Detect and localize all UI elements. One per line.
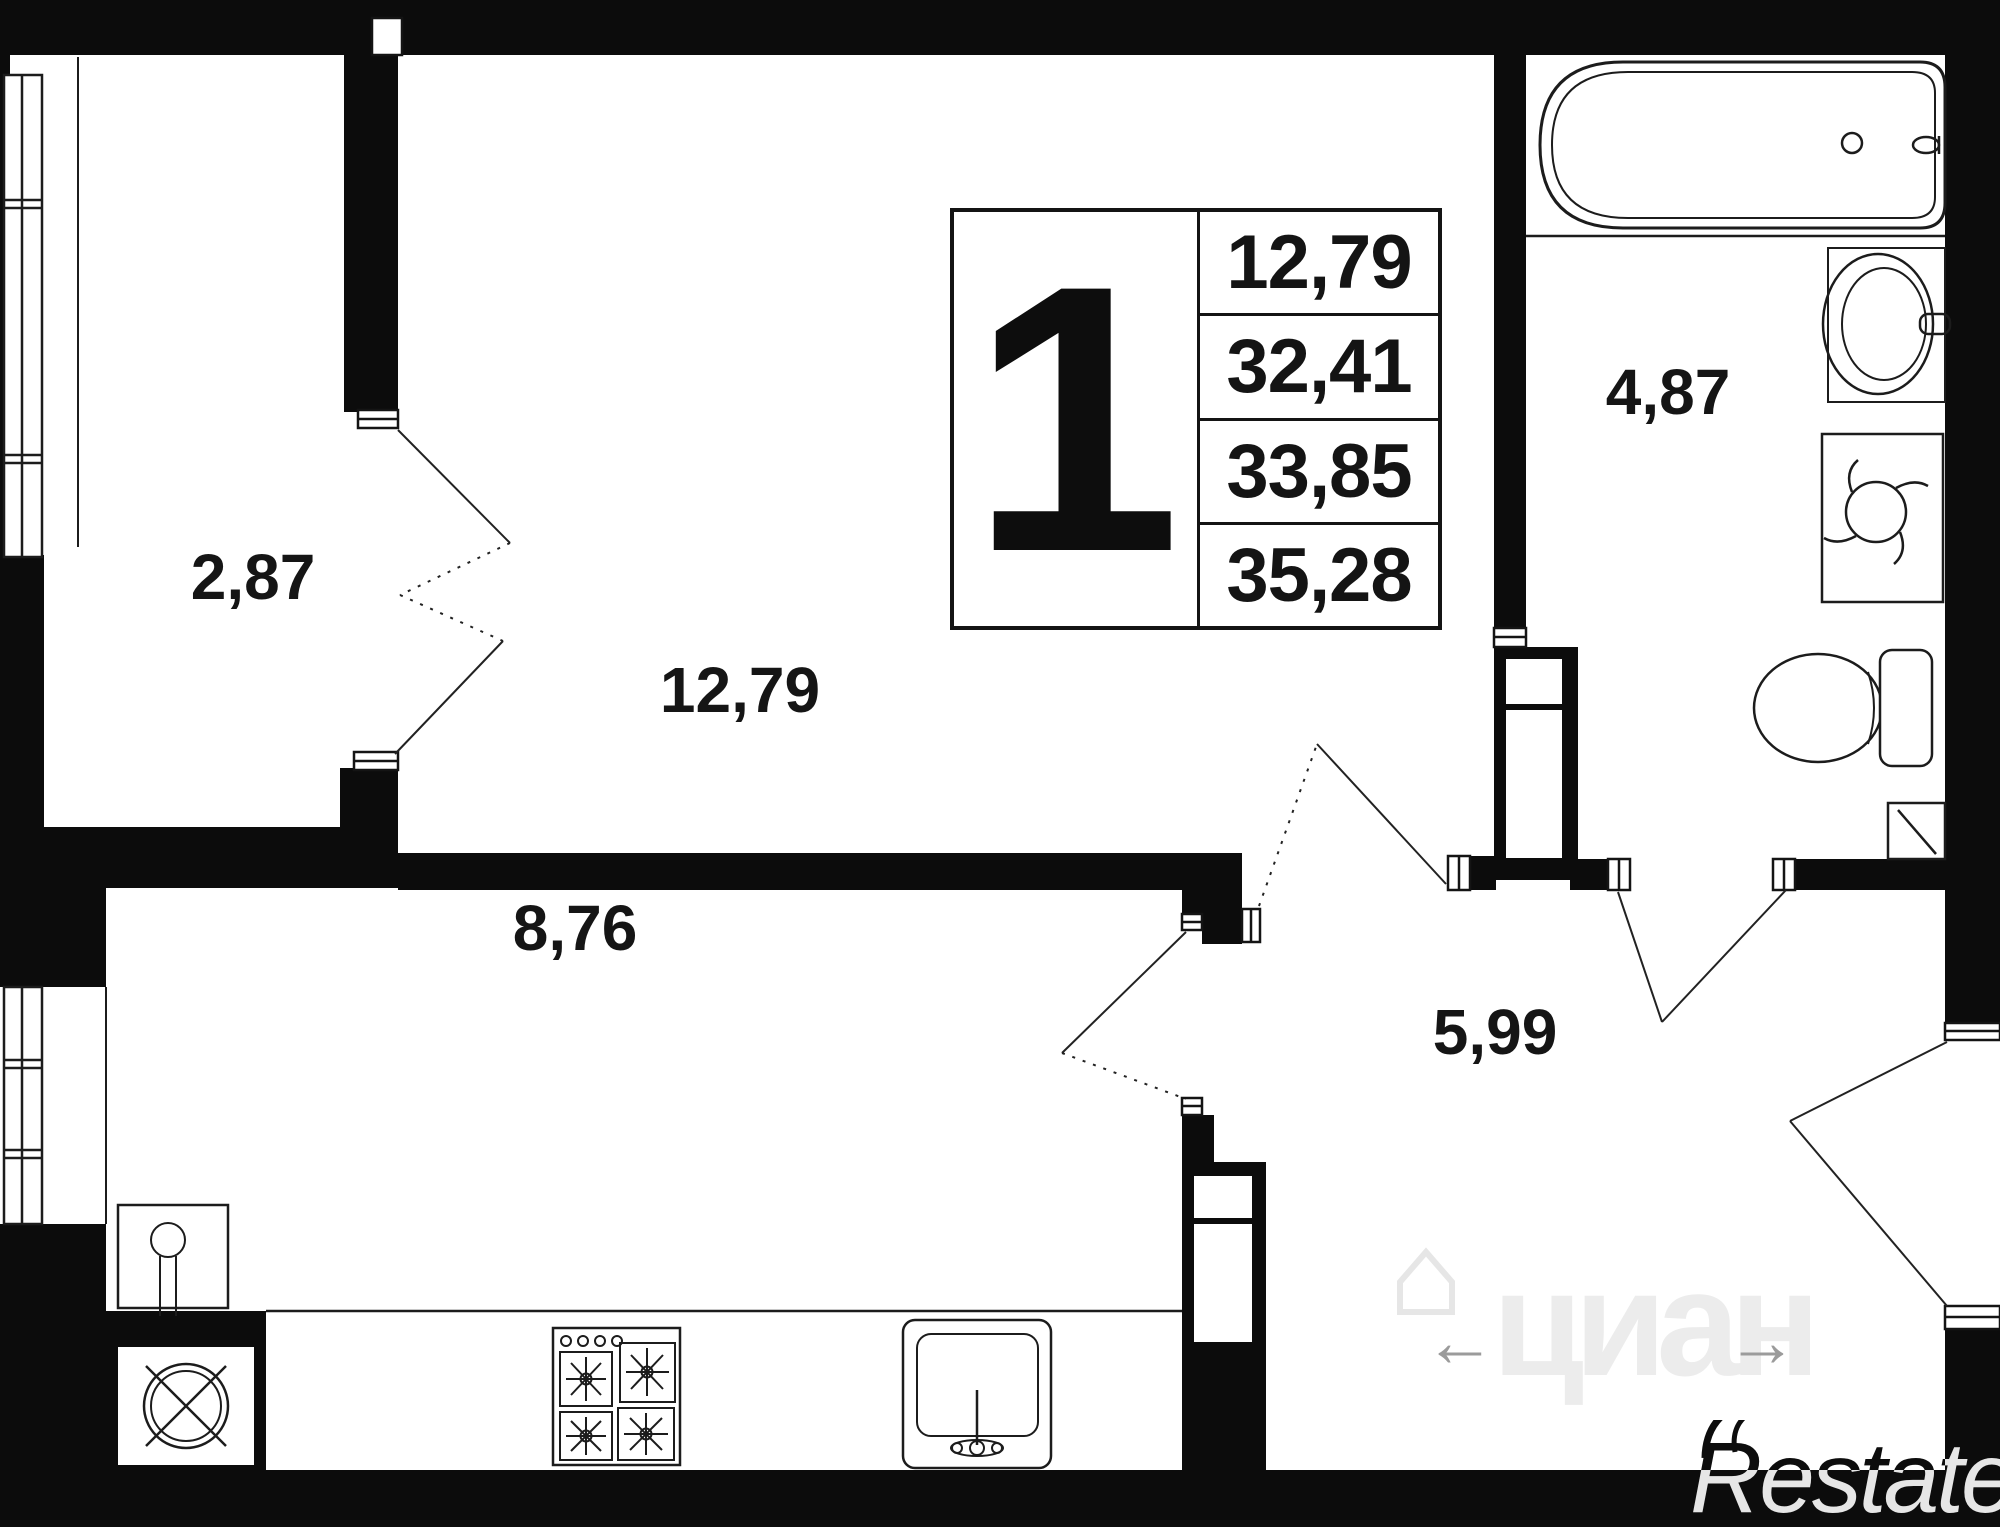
- entrance-door-swing-icon: [1790, 1042, 1947, 1121]
- rooms-count: 1: [954, 212, 1200, 626]
- left-arrow-icon: ←: [1424, 1306, 1496, 1378]
- floor-plan: 2,87 12,79 8,76 5,99 4,87 1 12,79 32,41 …: [0, 0, 2000, 1527]
- kitchen-window-icon: [4, 987, 106, 1224]
- kitchen-door-swing-icon: [1062, 932, 1186, 1053]
- bathroom-door-swing-icon: [1618, 892, 1662, 1022]
- washing-machine-icon: [1822, 434, 1943, 602]
- kitchen-sink-icon: [903, 1320, 1051, 1468]
- right-arrow-icon: →: [1726, 1306, 1798, 1378]
- area-row-total-with-balcony: 35,28: [1200, 525, 1438, 626]
- area-row-net: 32,41: [1200, 316, 1438, 420]
- room-label-bathroom: 4,87: [1606, 355, 1731, 429]
- hallway-area-value: 5,99: [1433, 996, 1558, 1068]
- area-table: 12,79 32,41 33,85 35,28: [1200, 212, 1438, 626]
- balcony-window-icon: [4, 57, 78, 557]
- living-room-area-value: 12,79: [660, 654, 820, 726]
- bath-sink-icon: [1823, 248, 1950, 402]
- bathroom-door-leaf-icon: [1888, 803, 1945, 859]
- room-label-balcony: 2,87: [191, 540, 316, 614]
- toilet-icon: [1754, 650, 1932, 766]
- room-label-living-room: 12,79: [660, 653, 820, 727]
- bathtub-icon: [1540, 62, 1945, 228]
- apartment-info-box: 1 12,79 32,41 33,85 35,28: [950, 208, 1442, 630]
- balcony-area-value: 2,87: [191, 541, 316, 613]
- stove-icon: [553, 1328, 680, 1465]
- area-row-living: 12,79: [1200, 212, 1438, 316]
- restate-text: Restate: [1690, 1428, 2000, 1527]
- area-row-total: 33,85: [1200, 421, 1438, 525]
- watermark-restate: Restate: [1682, 1420, 2000, 1527]
- water-riser-icon: [118, 1205, 228, 1316]
- wall-openings: [118, 659, 1562, 1465]
- room-label-kitchen: 8,76: [513, 891, 638, 965]
- balcony-door-swing-icon: [398, 430, 510, 543]
- living-hall-door-swing-icon: [1259, 744, 1317, 906]
- bathroom-area-value: 4,87: [1606, 356, 1731, 428]
- room-label-hallway: 5,99: [1433, 995, 1558, 1069]
- kitchen-area-value: 8,76: [513, 892, 638, 964]
